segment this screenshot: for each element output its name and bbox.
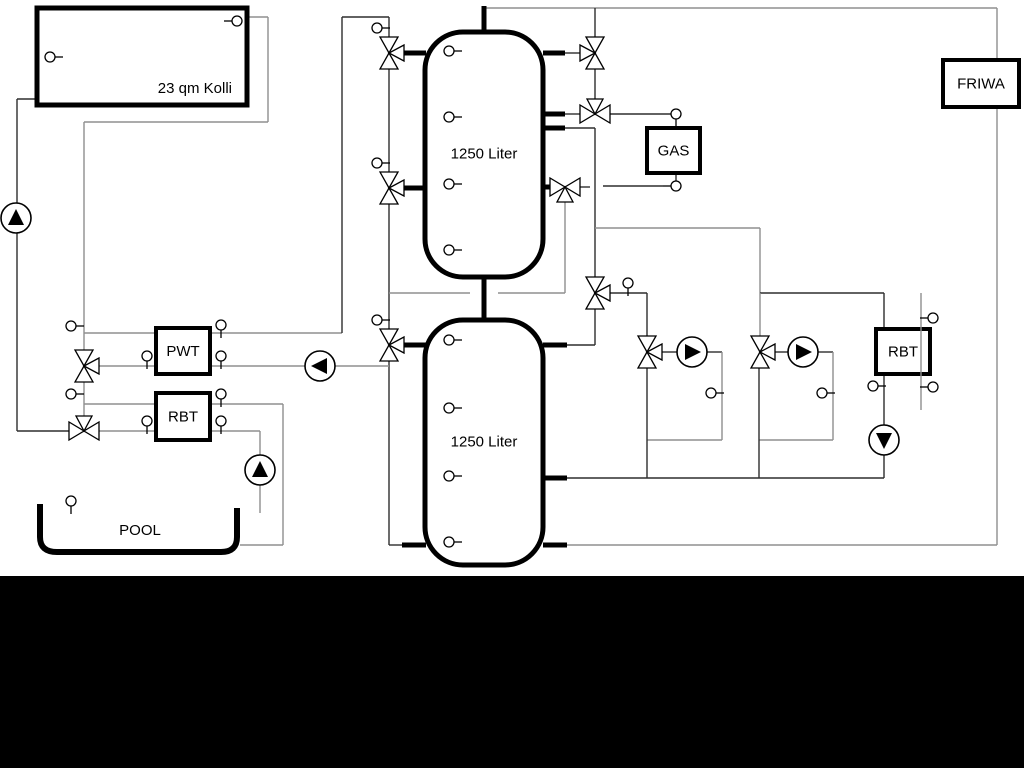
friwa-box-label: FRIWA [957, 75, 1005, 92]
temperature-sensor [444, 46, 454, 56]
gas-box-label: GAS [658, 142, 690, 159]
schematic-page: 1250 Liter1250 Liter23 qm KolliPWTRBTGAS… [0, 0, 1024, 768]
pwt-box-label: PWT [166, 343, 199, 360]
temperature-sensor [216, 389, 226, 399]
rbt-left-box-label: RBT [168, 408, 198, 425]
temperature-sensor [216, 416, 226, 426]
tank-label: 1250 Liter [451, 145, 518, 162]
temperature-sensor [623, 278, 633, 288]
rbt-right-box-label: RBT [888, 343, 918, 360]
temperature-sensor [142, 416, 152, 426]
temperature-sensor [444, 403, 454, 413]
temperature-sensor [372, 158, 382, 168]
temperature-sensor [868, 381, 878, 391]
temperature-sensor [671, 109, 681, 119]
temperature-sensor [444, 471, 454, 481]
temperature-sensor [372, 315, 382, 325]
collector-box-label: 23 qm Kolli [158, 80, 232, 97]
hydraulic-schematic: 1250 Liter1250 Liter23 qm KolliPWTRBTGAS… [0, 0, 1024, 768]
temperature-sensor [928, 313, 938, 323]
temperature-sensor [142, 351, 152, 361]
temperature-sensor [444, 245, 454, 255]
temperature-sensor [444, 335, 454, 345]
bottom-black-band [0, 576, 1024, 768]
temperature-sensor [45, 52, 55, 62]
temperature-sensor [706, 388, 716, 398]
tank-label: 1250 Liter [451, 433, 518, 450]
temperature-sensor [444, 179, 454, 189]
temperature-sensor [66, 321, 76, 331]
temperature-sensor [444, 537, 454, 547]
temperature-sensor [817, 388, 827, 398]
temperature-sensor [928, 382, 938, 392]
temperature-sensor [372, 23, 382, 33]
temperature-sensor [216, 351, 226, 361]
temperature-sensor [66, 389, 76, 399]
pool-label: POOL [119, 522, 161, 539]
temperature-sensor [671, 181, 681, 191]
temperature-sensor [232, 16, 242, 26]
temperature-sensor [66, 496, 76, 506]
temperature-sensor [216, 320, 226, 330]
temperature-sensor [444, 112, 454, 122]
